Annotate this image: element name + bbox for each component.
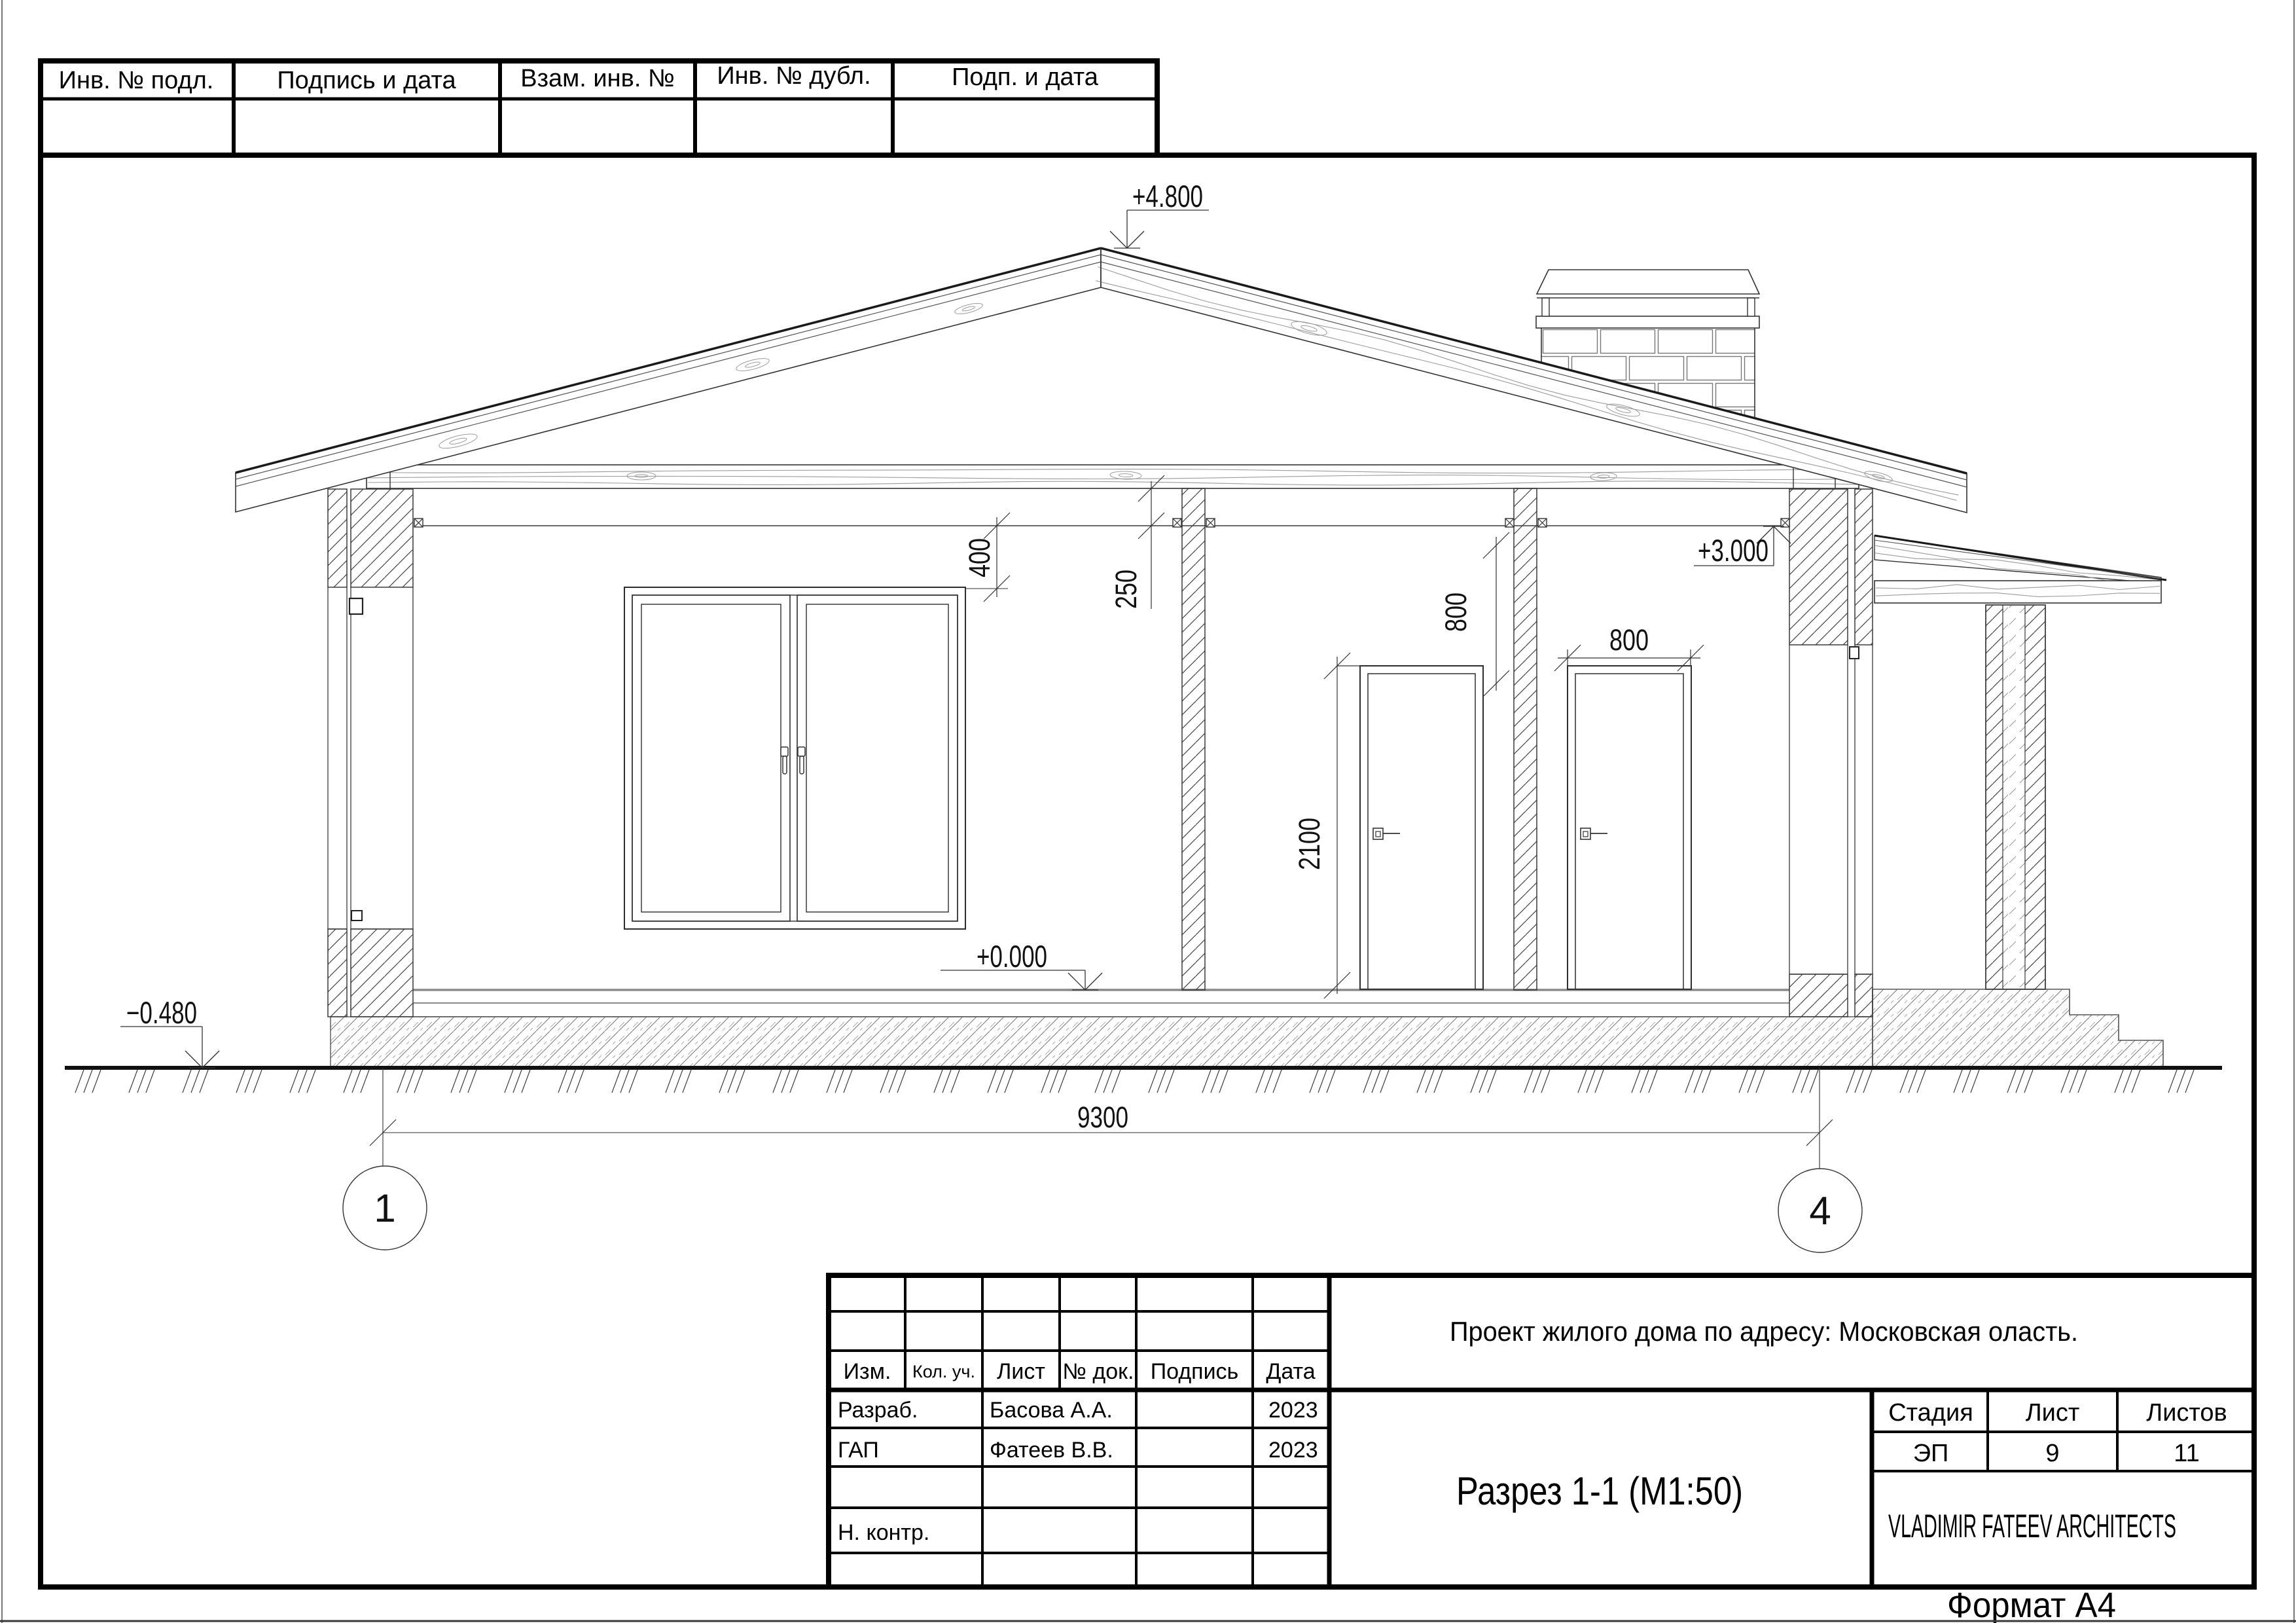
svg-text:Взам. инв. №: Взам. инв. № — [520, 65, 674, 92]
svg-text:VLADIMIR FATEEV ARCHITECTS: VLADIMIR FATEEV ARCHITECTS — [1888, 1508, 2176, 1544]
svg-text:Инв. № дубл.: Инв. № дубл. — [717, 62, 870, 90]
svg-text:2023: 2023 — [1268, 1398, 1318, 1423]
svg-text:Лист: Лист — [997, 1359, 1045, 1384]
svg-text:Подпись: Подпись — [1151, 1359, 1239, 1384]
svg-text:9300: 9300 — [1077, 1101, 1128, 1134]
svg-text:+4.800: +4.800 — [1132, 179, 1203, 213]
svg-text:Кол. уч.: Кол. уч. — [912, 1362, 975, 1381]
svg-text:−0.480: −0.480 — [126, 995, 197, 1030]
svg-text:Листов: Листов — [2146, 1399, 2227, 1427]
svg-text:11: 11 — [2174, 1440, 2199, 1467]
svg-text:Инв. № подл.: Инв. № подл. — [59, 67, 214, 94]
svg-text:2100: 2100 — [1293, 818, 1326, 870]
svg-text:9: 9 — [2045, 1440, 2059, 1467]
svg-text:Н. контр.: Н. контр. — [838, 1520, 929, 1545]
svg-text:Разрез 1-1 (М1:50): Разрез 1-1 (М1:50) — [1456, 1469, 1743, 1513]
svg-text:Фатеев В.В.: Фатеев В.В. — [990, 1438, 1113, 1463]
svg-text:1: 1 — [374, 1186, 395, 1230]
svg-text:800: 800 — [1609, 623, 1649, 657]
svg-text:250: 250 — [1109, 570, 1143, 609]
svg-text:Подпись и дата: Подпись и дата — [277, 67, 456, 94]
svg-text:+0.000: +0.000 — [977, 939, 1047, 974]
svg-text:ГАП: ГАП — [838, 1438, 879, 1463]
svg-text:Дата: Дата — [1266, 1359, 1315, 1384]
svg-text:4: 4 — [1809, 1189, 1831, 1233]
svg-text:№ док.: № док. — [1063, 1359, 1134, 1384]
svg-text:400: 400 — [963, 538, 996, 577]
svg-text:Подп. и дата: Подп. и дата — [952, 64, 1099, 91]
svg-text:Изм.: Изм. — [844, 1359, 891, 1384]
svg-text:Проект жилого дома по адресу:: Проект жилого дома по адресу: Московская… — [1450, 1316, 2078, 1347]
svg-text:+3.000: +3.000 — [1698, 533, 1768, 568]
svg-text:Разраб.: Разраб. — [838, 1398, 918, 1423]
svg-text:Формат А4: Формат А4 — [1947, 1586, 2116, 1623]
svg-text:Лист: Лист — [2026, 1399, 2080, 1427]
svg-text:2023: 2023 — [1268, 1438, 1318, 1463]
svg-text:800: 800 — [1439, 593, 1473, 632]
svg-text:Стадия: Стадия — [1888, 1399, 1973, 1427]
svg-text:Басова А.А.: Басова А.А. — [990, 1398, 1113, 1423]
svg-text:ЭП: ЭП — [1913, 1440, 1949, 1467]
